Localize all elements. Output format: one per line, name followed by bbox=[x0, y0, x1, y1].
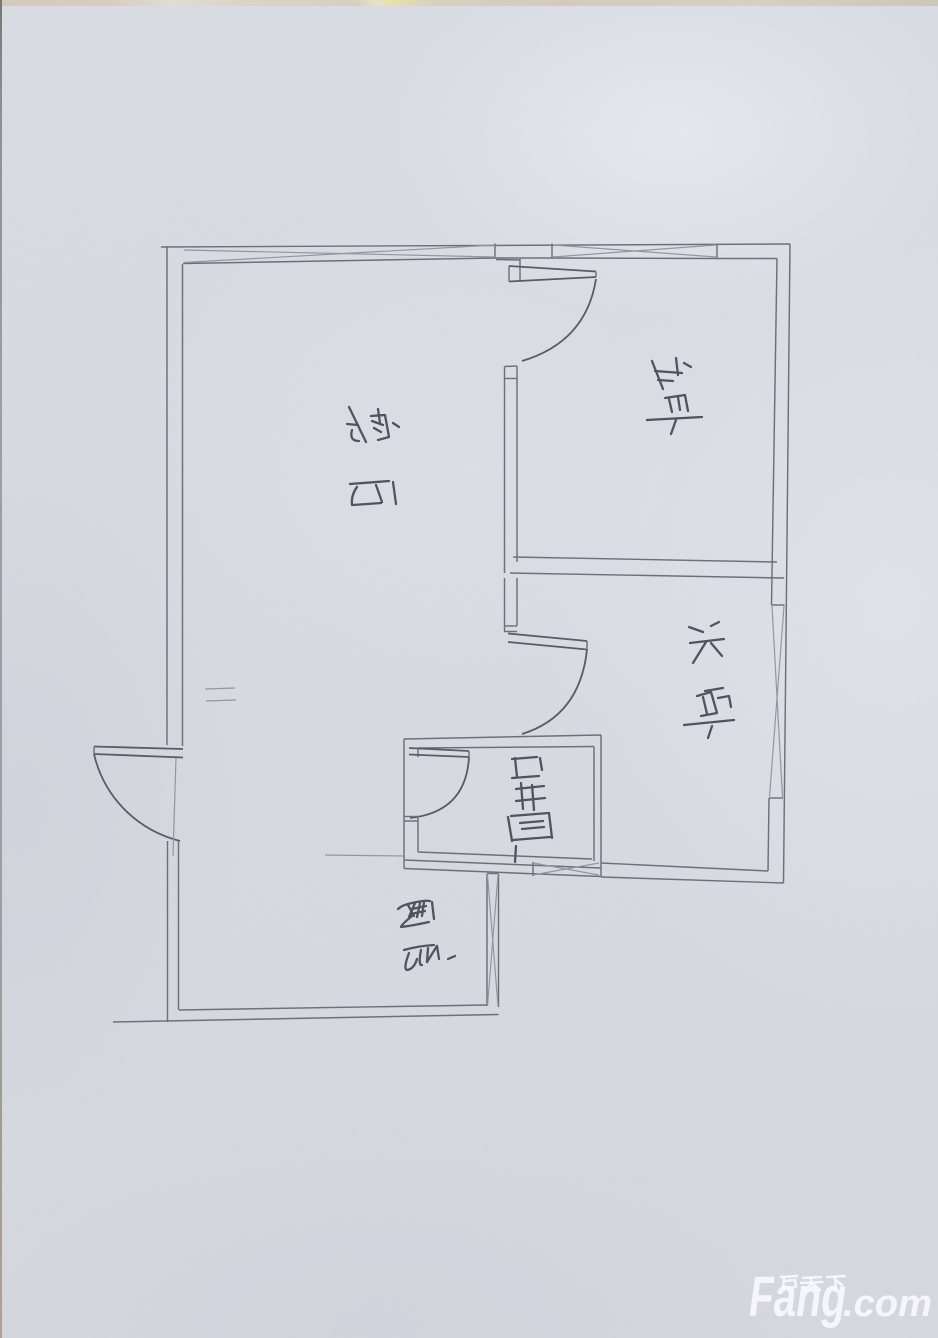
svg-text:.com: .com bbox=[843, 1283, 932, 1325]
svg-text:Fang: Fang bbox=[749, 1265, 846, 1329]
